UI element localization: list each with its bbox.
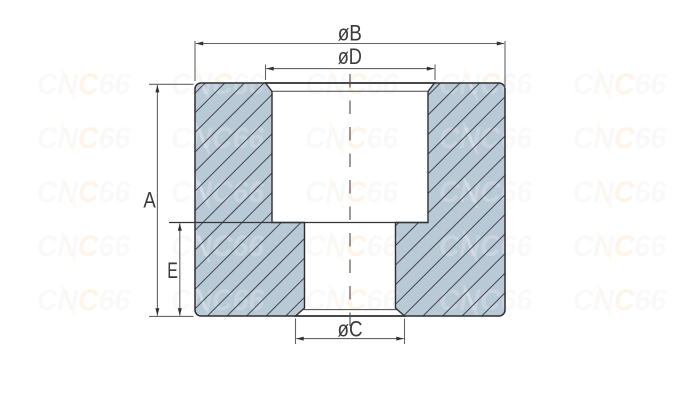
svg-text:øB: øB xyxy=(338,20,362,45)
svg-text:CNC66: CNC66 xyxy=(573,122,666,155)
svg-text:CNC66: CNC66 xyxy=(305,176,398,209)
svg-text:CNC66: CNC66 xyxy=(305,230,398,263)
svg-text:CNC66: CNC66 xyxy=(37,230,130,263)
svg-text:CNC66: CNC66 xyxy=(37,284,130,317)
svg-text:CNC66: CNC66 xyxy=(573,230,666,263)
svg-text:øD: øD xyxy=(338,44,362,69)
svg-text:CNC66: CNC66 xyxy=(573,284,666,317)
svg-text:CNC66: CNC66 xyxy=(573,176,666,209)
svg-text:A: A xyxy=(143,188,156,213)
svg-text:CNC66: CNC66 xyxy=(305,122,398,155)
svg-text:CNC66: CNC66 xyxy=(37,68,130,101)
svg-text:CNC66: CNC66 xyxy=(37,176,130,209)
svg-text:CNC66: CNC66 xyxy=(305,68,398,101)
svg-text:E: E xyxy=(167,258,178,283)
svg-text:CNC66: CNC66 xyxy=(573,68,666,101)
svg-text:CNC66: CNC66 xyxy=(305,284,398,317)
svg-text:øC: øC xyxy=(338,316,363,341)
svg-text:CNC66: CNC66 xyxy=(37,122,130,155)
